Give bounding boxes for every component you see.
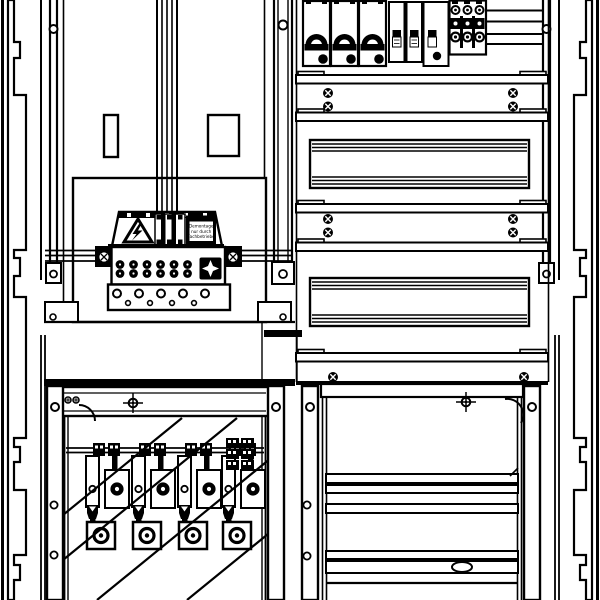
busbar-passthrough bbox=[155, 214, 185, 245]
mcb-pole-1 bbox=[303, 0, 330, 66]
bay-top-right bbox=[296, 0, 549, 382]
rail-screw-icon bbox=[508, 214, 518, 224]
bottom-left-column-r bbox=[268, 386, 284, 600]
crossbar-3a bbox=[326, 551, 518, 559]
crossbar-3b bbox=[326, 561, 518, 573]
warning-label: Demontage nur durch Fachbetriebe bbox=[186, 216, 216, 247]
control-terminal-block bbox=[450, 0, 487, 55]
wire-outlet-block bbox=[108, 285, 230, 311]
small-bolt-icon bbox=[73, 397, 79, 403]
frame-right-profile bbox=[574, 0, 592, 600]
busbar-support: Demontage nur durch Fachbetriebe bbox=[108, 212, 224, 250]
rail-screw-icon bbox=[508, 228, 518, 238]
rail-screw-icon bbox=[328, 372, 338, 382]
star-screw-terminal bbox=[200, 258, 222, 280]
crossbar-2 bbox=[326, 504, 518, 513]
mounting-rail-4 bbox=[296, 239, 548, 251]
mcb-pole-2 bbox=[331, 0, 358, 66]
rail-screw-icon bbox=[323, 214, 333, 224]
bottom-right-column-r bbox=[524, 386, 540, 600]
din-module-1 bbox=[389, 2, 405, 62]
frame-hole bbox=[50, 25, 58, 33]
clamp-bolt-icon bbox=[228, 252, 239, 263]
bottom-left-column-l bbox=[47, 386, 63, 600]
din-rail-panel-2 bbox=[310, 278, 529, 326]
din-rail-panel-1 bbox=[310, 140, 529, 188]
mounting-rail-5 bbox=[296, 350, 548, 362]
warning-label-line3: Fachbetriebe bbox=[188, 234, 216, 239]
mounting-rail-1 bbox=[296, 72, 548, 84]
rail-screw-icon bbox=[323, 228, 333, 238]
terminal-pole bbox=[451, 6, 461, 41]
warning-label-line2: nur durch bbox=[191, 229, 212, 234]
cable-bend-arc bbox=[505, 399, 523, 423]
oval-knockout bbox=[452, 562, 472, 572]
rail-screw-icon bbox=[508, 102, 518, 112]
mounting-rail-2 bbox=[296, 109, 548, 121]
mcb-pole-3 bbox=[359, 0, 386, 66]
mounting-rail-3 bbox=[296, 201, 548, 213]
fuse-switch-strip-2 bbox=[132, 443, 175, 549]
breaker-group bbox=[303, 0, 449, 66]
frame-left-profile bbox=[8, 0, 26, 600]
clamp-bolt-icon bbox=[99, 252, 110, 263]
fuse-switch-strip-1 bbox=[86, 443, 129, 549]
terminal-strip bbox=[112, 247, 226, 285]
warning-label-line1: Demontage bbox=[189, 224, 214, 229]
cabinet-drawing: Demontage nur durch Fachbetriebe bbox=[0, 0, 600, 600]
bottom-right-top-bar bbox=[321, 384, 523, 397]
fuse-switch-strip-3 bbox=[178, 443, 221, 549]
small-bolt-icon bbox=[65, 397, 71, 403]
panel-cutout-left bbox=[104, 115, 118, 157]
mullion-hole bbox=[279, 21, 288, 30]
rail-screw-icon bbox=[508, 88, 518, 98]
din-module-3 bbox=[424, 2, 449, 66]
din-module-2 bbox=[407, 2, 423, 62]
bay-top-left: Demontage nur durch Fachbetriebe bbox=[45, 0, 292, 322]
rail-screw-icon bbox=[519, 372, 529, 382]
panel-cutout-right bbox=[208, 115, 239, 156]
bottom-right-column-l bbox=[302, 386, 318, 600]
cabinet-svg: Demontage nur durch Fachbetriebe bbox=[0, 0, 600, 600]
bay-bottom-left bbox=[47, 386, 284, 600]
terminal-pole bbox=[475, 6, 485, 41]
terminal-pole bbox=[463, 6, 473, 41]
crossbar-1b bbox=[326, 485, 518, 493]
rail-screw-icon bbox=[323, 88, 333, 98]
bottom-left-top-bar bbox=[58, 387, 270, 416]
crossbar-1a bbox=[326, 474, 518, 483]
bay-bottom-right bbox=[302, 384, 540, 600]
